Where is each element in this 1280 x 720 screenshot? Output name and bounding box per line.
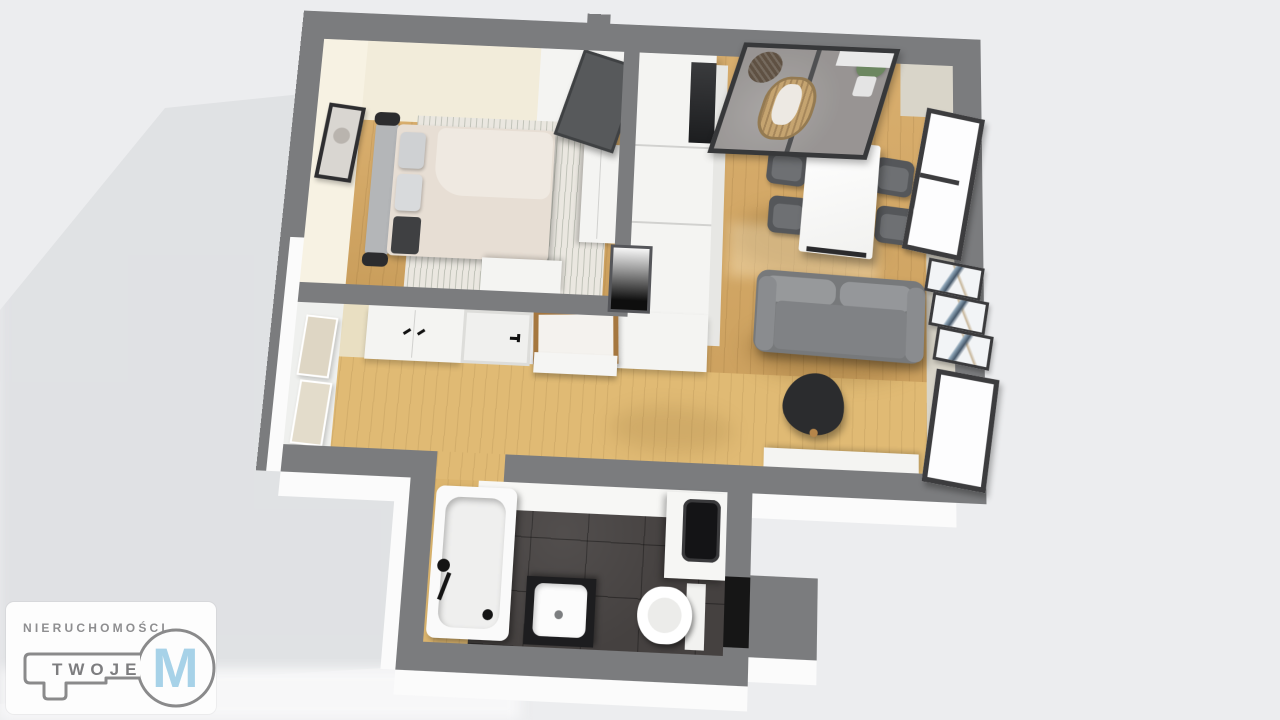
fridge — [608, 244, 653, 313]
floor-plan-render: NIERUCHOMOŚCI TWOJE M — [0, 0, 1280, 720]
kitchen-south-face — [609, 311, 708, 372]
logo-key-graphic: NIERUCHOMOŚCI TWOJE M — [6, 602, 216, 714]
bed-pillow-2 — [394, 174, 423, 212]
sofa-armrest-right — [905, 287, 926, 363]
window-bottom-right — [922, 369, 1000, 494]
coffee-table-leg — [809, 429, 817, 438]
bed-pillow-1 — [398, 132, 426, 169]
entrance-door — [460, 309, 532, 366]
bed-duvet-fold — [433, 128, 553, 200]
wall-stub-outer-face — [748, 657, 817, 685]
window-mullion — [920, 173, 960, 186]
bedside-lamp-bottom — [361, 252, 388, 267]
logo-monogram: M — [152, 636, 199, 699]
hallway-shelf — [533, 352, 617, 376]
entrance-door-handle-2 — [517, 334, 521, 342]
wall-south-outer-face-left — [278, 471, 411, 502]
glass-pane-tint — [714, 47, 894, 155]
living-north-wall-face — [900, 64, 925, 117]
agency-logo: NIERUCHOMOŚCI TWOJE M — [6, 602, 216, 714]
bedside-lamp-top — [374, 112, 400, 126]
logo-line2: TWOJE — [52, 660, 142, 679]
wall-stub-right — [748, 575, 817, 660]
logo-line1: NIERUCHOMOŚCI — [23, 620, 168, 635]
kitchen-tall-black-cabinet — [688, 62, 716, 144]
bathroom-doorway — [723, 576, 750, 648]
bed-throw-blanket — [391, 216, 422, 254]
apartment-plan — [229, 11, 989, 720]
washing-machine-door — [681, 499, 721, 563]
bedroom-dresser — [480, 257, 562, 293]
